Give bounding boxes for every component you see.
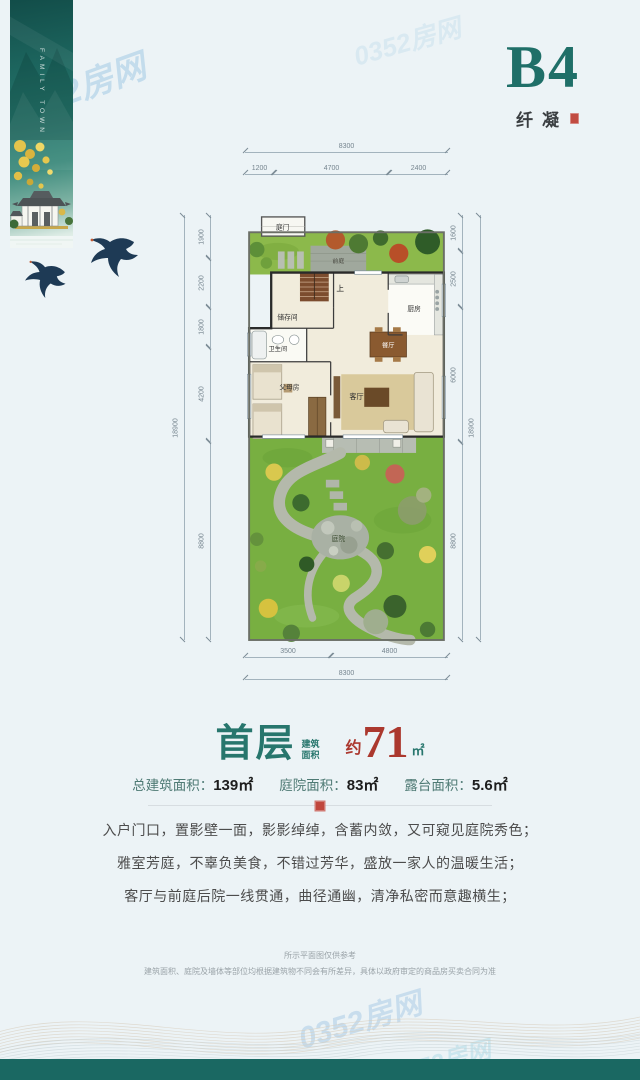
description-line: 入户门口，置影壁一面，影影绰绰，含蓄内敛，又可窥见庭院秀色；	[0, 820, 640, 840]
area-unit: ㎡	[412, 740, 425, 759]
divider-seal-icon	[315, 800, 326, 811]
wave-decoration	[0, 968, 640, 1060]
label-gate: 庭门	[276, 222, 290, 231]
disclaimer-line1: 所示平面图仅供参考	[0, 950, 640, 961]
stat-label: 总建筑面积：	[132, 774, 213, 794]
label-living: 客厅	[349, 392, 363, 401]
dim-right-total: 18900	[480, 215, 481, 640]
dim-top-segments: 1200 4700 2400	[245, 174, 448, 175]
area-summary: 首层 建筑 面积 约 71 ㎡ 总建筑面积： 139㎡ 庭院面积： 83㎡ 露台…	[0, 722, 640, 795]
description-line: 雅室芳庭，不辜负美食，不错过芳华，盛放一家人的温暖生活；	[0, 853, 640, 873]
unit-header: B4 纤凝	[468, 36, 618, 131]
dim-right-segments: 1600 2500 6000 8800	[462, 215, 463, 640]
flyer-page: 0352房网 0352房网 0352房网 0352房网	[0, 0, 640, 1080]
unit-code: B4	[468, 36, 618, 98]
dim-left-total: 18900	[184, 215, 185, 640]
label-stairs-up: 上	[336, 284, 344, 293]
label-parents-room: 父母房	[279, 383, 299, 392]
floor-label: 首层	[215, 726, 295, 762]
label-kitchen: 厨房	[407, 304, 421, 313]
stat-value: 5.6㎡	[472, 774, 508, 795]
description-line: 客厅与前庭后院一线贯通，曲径通幽，清净私密而意趣横生；	[0, 886, 640, 906]
stat-label: 露台面积：	[404, 774, 472, 794]
stat-courtyard-area: 庭院面积： 83㎡	[279, 774, 378, 795]
area-value: 71	[363, 722, 409, 762]
unit-name: 纤凝	[507, 106, 568, 131]
swallow-icon	[84, 234, 138, 278]
label-dining: 餐厅	[382, 341, 394, 349]
dim-bottom-total: 8300	[245, 679, 448, 680]
label-bathroom: 卫生间	[269, 345, 288, 353]
stat-value: 139㎡	[213, 774, 253, 795]
area-caption-bottom: 面积	[301, 750, 319, 761]
brand-banner: FAMILY TOWN	[10, 0, 73, 248]
seal-stamp-icon	[570, 113, 579, 124]
description-text: 入户门口，置影壁一面，影影绰绰，含蓄内敛，又可窥见庭院秀色； 雅室芳庭，不辜负美…	[0, 820, 640, 919]
banner-vertical-text: FAMILY TOWN	[38, 48, 45, 136]
label-storage: 储存间	[277, 313, 297, 322]
footer-band	[0, 1059, 640, 1080]
swallow-icon	[16, 255, 70, 303]
dim-top-total: 8300	[245, 152, 448, 153]
area-stats: 总建筑面积： 139㎡ 庭院面积： 83㎡ 露台面积： 5.6㎡	[0, 774, 640, 795]
stat-value: 83㎡	[347, 774, 379, 795]
area-caption: 建筑 面积	[301, 739, 319, 760]
approx-prefix: 约	[346, 734, 362, 758]
area-caption-top: 建筑	[301, 739, 319, 750]
stat-terrace-area: 露台面积： 5.6㎡	[404, 774, 507, 795]
label-front-yard: 前庭	[332, 257, 344, 265]
section-divider	[148, 805, 492, 806]
dim-left-segments: 1900 2200 1800 4200 8800	[210, 215, 211, 640]
label-courtyard: 庭院	[332, 534, 346, 543]
stat-label: 庭院面积：	[279, 774, 347, 794]
dim-bottom-segments: 3500 4800	[245, 657, 448, 658]
floor-plan: 庭门 前庭 储存间 上 厨房 卫生间 餐厅 父母房 客厅 庭院	[245, 215, 448, 640]
pavilion-illustration	[10, 191, 73, 248]
watermark: 0352房网	[349, 8, 465, 74]
stat-total-area: 总建筑面积： 139㎡	[132, 774, 253, 795]
